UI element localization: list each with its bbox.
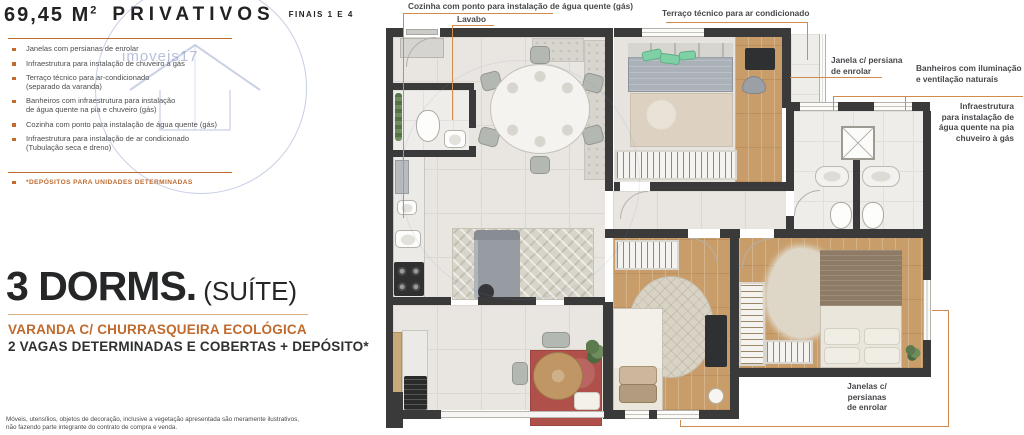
callout-banheiros: Banheiros com iluminação e ventilação na… xyxy=(916,63,1024,84)
feature-item: Infraestrutura para instalação de chuvei… xyxy=(8,60,318,69)
suite-door xyxy=(740,229,774,238)
wall xyxy=(469,90,476,128)
kitchen-sink xyxy=(395,230,421,248)
dining-chair xyxy=(530,46,550,64)
callout-cozinha: Cozinha com ponto para instalação de águ… xyxy=(408,1,668,12)
kitchen-mirror xyxy=(395,160,409,194)
floorplan-sheet: 69,45 M2 PRIVATIVOS FINAIS 1 E 4 Janelas… xyxy=(0,0,1024,435)
bath2-vanity xyxy=(862,166,900,187)
feature-item: Terraço técnico para ar-condicionado (se… xyxy=(8,74,318,91)
window xyxy=(874,102,912,111)
feature-item: Infraestrutura para instalação de ar con… xyxy=(8,135,318,152)
callout-infraestrutura: Infraestrutura para instalação de água q… xyxy=(920,101,1014,143)
callout-line xyxy=(680,426,948,427)
callout-line xyxy=(905,96,906,110)
wall xyxy=(786,111,794,191)
wall xyxy=(730,238,739,419)
callout-lavabo: Lavabo xyxy=(457,14,486,25)
feature-item: Janelas com persianas de enrolar xyxy=(8,45,318,54)
stove xyxy=(394,262,424,296)
callout-line xyxy=(403,13,553,14)
floor-terraco xyxy=(791,34,819,102)
wall xyxy=(393,297,451,305)
suite-blanket xyxy=(820,250,902,306)
wall xyxy=(774,229,930,238)
callout-line xyxy=(833,96,834,110)
service-sink xyxy=(397,200,417,215)
callout-terraco: Terraço técnico para ar condicionado xyxy=(662,8,812,19)
bedroom3-door xyxy=(688,229,720,238)
wall xyxy=(605,28,613,191)
wall xyxy=(478,297,536,305)
feature-list: Janelas com persianas de enrolar Infraes… xyxy=(8,45,318,158)
bedroom3-pillow xyxy=(619,366,657,385)
wall xyxy=(614,28,642,37)
wall xyxy=(603,302,613,419)
page-title: PRIVATIVOS xyxy=(112,4,274,26)
window xyxy=(625,410,649,419)
wall xyxy=(786,102,800,111)
lavabo-plant xyxy=(395,93,402,141)
callout-line xyxy=(833,96,1023,97)
wall xyxy=(838,102,874,111)
bath2-toilet xyxy=(862,202,884,229)
dining-table xyxy=(490,64,590,154)
entry-door-leaf xyxy=(406,29,438,35)
window xyxy=(923,280,931,340)
bath-door xyxy=(786,191,794,216)
bedroom2-chair xyxy=(742,76,766,94)
finais-label: FINAIS 1 E 4 xyxy=(289,10,354,19)
window xyxy=(642,28,704,37)
title-block: 69,45 M2 PRIVATIVOS FINAIS 1 E 4 xyxy=(4,4,354,27)
suite-plant xyxy=(905,342,921,362)
wall xyxy=(649,410,657,419)
wall xyxy=(782,28,791,108)
callout-line xyxy=(790,77,882,78)
callout-line xyxy=(452,25,494,26)
bedroom3-desk xyxy=(705,315,727,367)
suite-closet xyxy=(739,282,765,366)
wall xyxy=(720,229,740,238)
feature-item: Cozinha com ponto para instalação de águ… xyxy=(8,121,318,130)
wall xyxy=(613,410,625,419)
varanda-pillows xyxy=(574,392,600,410)
headline: 3 DORMS. (SUÍTE) xyxy=(6,266,297,307)
wall xyxy=(650,182,790,191)
bedroom2-rug xyxy=(630,93,733,147)
wall xyxy=(386,150,474,157)
floor-plan xyxy=(386,26,942,430)
dorms-suite: (SUÍTE) xyxy=(203,276,297,307)
highlight-vagas: 2 VAGAS DETERMINADAS E COBERTAS + DEPÓSI… xyxy=(8,339,369,354)
callout-janela-top: Janela c/ persiana de enrolar xyxy=(831,55,921,76)
window xyxy=(657,410,699,419)
callout-line xyxy=(452,25,453,120)
grill xyxy=(404,376,427,410)
dining-chair xyxy=(530,156,550,174)
lavabo-toilet xyxy=(416,110,440,142)
wall xyxy=(564,297,605,305)
callout-janelas-bottom: Janelas c/ persianas de enrolar xyxy=(832,381,902,413)
suite-pillow xyxy=(824,347,860,364)
highlight-varanda: VARANDA C/ CHURRASQUEIRA ECOLÓGICA xyxy=(8,322,307,337)
feature-item: Banheiros com infraestrutura para instal… xyxy=(8,97,318,114)
varanda-chair xyxy=(542,332,570,348)
bedroom3-pillow xyxy=(619,384,657,403)
bedroom2-door xyxy=(620,182,650,191)
disclaimer: Móveis, utensílios, objetos de decoração… xyxy=(6,416,299,432)
suite-closet xyxy=(765,340,813,364)
bedroom2-desk xyxy=(745,48,775,70)
varanda-plant xyxy=(586,334,604,366)
bedroom2-closet xyxy=(615,150,737,180)
wall xyxy=(704,28,790,37)
bedroom3-stool xyxy=(708,388,724,404)
suite-pillow xyxy=(864,328,900,345)
bath1-vanity xyxy=(815,166,849,187)
wall xyxy=(730,368,931,377)
callout-line xyxy=(948,310,949,427)
wall xyxy=(386,83,474,90)
suite-pillow xyxy=(864,347,900,364)
wall xyxy=(699,410,730,419)
wall xyxy=(393,410,441,419)
callout-line xyxy=(932,310,948,311)
divider-note xyxy=(8,172,232,173)
terraco-window xyxy=(819,34,826,102)
shower xyxy=(841,126,875,160)
divider-headline xyxy=(8,314,308,315)
callout-line xyxy=(807,22,808,60)
bedroom3-closet xyxy=(615,240,679,270)
suite-pillow xyxy=(824,328,860,345)
varanda-railing xyxy=(441,411,604,418)
dorms-count: 3 DORMS. xyxy=(6,266,196,307)
area-sup: 2 xyxy=(90,4,98,16)
wall xyxy=(440,28,605,37)
lavabo-sink xyxy=(444,130,466,148)
area-value: 69,45 M2 xyxy=(4,4,98,27)
callout-line xyxy=(666,22,808,23)
wall xyxy=(786,216,794,229)
wall xyxy=(605,229,688,238)
callout-line xyxy=(403,13,404,218)
varanda-chair xyxy=(512,362,528,385)
wall xyxy=(853,160,860,229)
divider-top xyxy=(8,38,232,39)
green-pillow xyxy=(679,50,697,61)
bath1-toilet xyxy=(830,202,852,229)
